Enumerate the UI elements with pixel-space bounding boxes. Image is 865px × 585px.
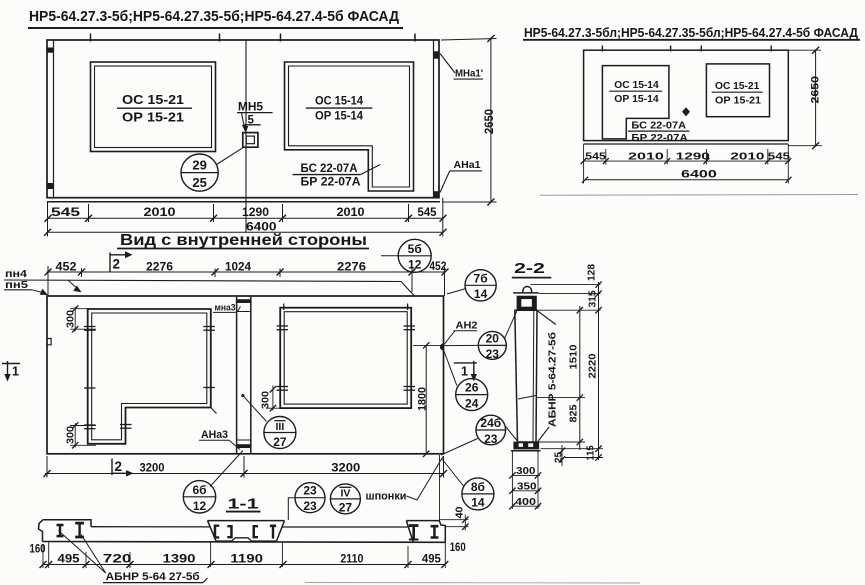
svg-text:26: 26	[465, 381, 479, 395]
svg-text:1: 1	[461, 365, 468, 379]
svg-text:300: 300	[65, 310, 77, 328]
svg-text:25: 25	[554, 452, 565, 463]
svg-text:12: 12	[408, 258, 422, 272]
svg-text:БР 22-07А: БР 22-07А	[631, 132, 688, 144]
svg-text:ОР 15-14: ОР 15-14	[315, 109, 363, 123]
svg-text:ОР 15-21: ОР 15-21	[715, 95, 761, 107]
svg-text:23: 23	[484, 432, 498, 446]
svg-text:пн5: пн5	[5, 279, 28, 291]
svg-text:ОС 15-21: ОС 15-21	[122, 93, 184, 107]
svg-text:2650: 2650	[810, 76, 822, 104]
svg-text:шпонки: шпонки	[366, 491, 407, 503]
svg-text:ОС 15-14: ОС 15-14	[315, 94, 363, 108]
svg-text:1: 1	[12, 365, 19, 379]
svg-text:495: 495	[58, 554, 81, 566]
svg-text:1290: 1290	[242, 207, 269, 219]
svg-text:1390: 1390	[163, 554, 196, 566]
svg-text:2010: 2010	[730, 151, 764, 163]
svg-text:6400: 6400	[681, 169, 717, 181]
svg-text:300: 300	[260, 391, 272, 409]
svg-text:АБНР 5-64 27-5б: АБНР 5-64 27-5б	[106, 571, 200, 583]
svg-text:545: 545	[418, 207, 438, 219]
svg-text:АНа1: АНа1	[454, 159, 481, 171]
svg-text:ОР 15-21: ОР 15-21	[122, 111, 184, 125]
svg-text:БР 22-07А: БР 22-07А	[301, 175, 361, 189]
svg-text:АБНР 5-64.27-5б: АБНР 5-64.27-5б	[547, 331, 559, 427]
svg-text:7б: 7б	[474, 271, 488, 285]
svg-text:1190: 1190	[230, 554, 263, 566]
svg-text:5б: 5б	[408, 242, 422, 256]
svg-text:545: 545	[51, 207, 81, 219]
svg-text:300: 300	[516, 465, 536, 477]
svg-text:315: 315	[588, 290, 599, 307]
svg-text:825: 825	[568, 404, 580, 422]
svg-text:452: 452	[56, 262, 77, 274]
svg-text:2: 2	[113, 257, 121, 272]
svg-text:2010: 2010	[144, 207, 176, 219]
svg-text:2276: 2276	[146, 262, 173, 274]
svg-text:МН5: МН5	[238, 102, 264, 114]
svg-text:545: 545	[585, 151, 606, 163]
svg-text:23: 23	[303, 499, 317, 513]
svg-text:14: 14	[471, 496, 485, 510]
svg-text:2110: 2110	[340, 554, 363, 566]
svg-text:300: 300	[65, 426, 77, 444]
svg-text:НР5-64.27.3-5б;НР5-64.27.35-5б: НР5-64.27.3-5б;НР5-64.27.35-5б;НР5-64.27…	[29, 8, 399, 25]
svg-text:ОР 15-14: ОР 15-14	[614, 93, 659, 105]
svg-text:ОС 15-21: ОС 15-21	[715, 80, 759, 92]
svg-text:6б: 6б	[192, 483, 206, 497]
svg-text:24: 24	[465, 397, 479, 411]
svg-text:АНа3: АНа3	[201, 429, 228, 441]
svg-text:23: 23	[303, 484, 317, 498]
svg-text:НР5-64.27.3-5бл;НР5-64.27.35-5: НР5-64.27.3-5бл;НР5-64.27.35-5бл;НР5-64.…	[524, 26, 858, 40]
svg-text:2-2: 2-2	[514, 261, 545, 277]
svg-text:29: 29	[192, 158, 206, 173]
svg-text:2010: 2010	[628, 151, 664, 163]
svg-text:12: 12	[193, 499, 207, 513]
svg-text:25: 25	[192, 175, 206, 190]
svg-text:1290: 1290	[676, 151, 710, 163]
svg-text:452: 452	[429, 261, 446, 273]
svg-text:3200: 3200	[331, 463, 360, 475]
svg-text:23: 23	[486, 347, 500, 361]
svg-text:20: 20	[486, 331, 500, 345]
svg-text:495: 495	[422, 554, 442, 566]
svg-text:160: 160	[450, 542, 466, 554]
svg-text:1024: 1024	[225, 262, 252, 274]
svg-text:128: 128	[587, 264, 598, 281]
svg-text:3200: 3200	[140, 463, 165, 475]
svg-text:27: 27	[273, 435, 287, 449]
svg-text:720: 720	[103, 554, 132, 566]
svg-text:ОС 15-14: ОС 15-14	[614, 79, 659, 91]
svg-text:350: 350	[517, 480, 537, 492]
svg-text:14: 14	[474, 287, 488, 301]
svg-text:24б: 24б	[480, 416, 501, 430]
svg-text:2650: 2650	[484, 109, 496, 134]
svg-text:1800: 1800	[417, 387, 429, 411]
svg-text:АН2: АН2	[456, 320, 478, 332]
svg-text:2220: 2220	[587, 353, 599, 378]
svg-text:545: 545	[768, 151, 790, 163]
svg-text:8б: 8б	[471, 480, 485, 494]
svg-text:1510: 1510	[568, 344, 580, 369]
svg-text:2010: 2010	[337, 207, 365, 219]
svg-text:Вид с внутренней стороны: Вид с внутренней стороны	[120, 232, 367, 249]
svg-text:2: 2	[115, 459, 123, 474]
svg-text:2276: 2276	[337, 262, 366, 274]
svg-text:IV: IV	[340, 487, 350, 499]
svg-text:27: 27	[339, 500, 353, 514]
svg-text:мна3: мна3	[215, 303, 236, 314]
svg-text:40: 40	[455, 506, 466, 518]
svg-text:1-1: 1-1	[228, 496, 259, 513]
svg-text:115: 115	[586, 445, 597, 460]
svg-text:МНа1': МНа1'	[455, 69, 483, 80]
svg-text:III: III	[276, 421, 285, 433]
svg-text:400: 400	[515, 496, 536, 508]
svg-text:БС 22-07А: БС 22-07А	[301, 161, 358, 175]
svg-text:БС 22-07А: БС 22-07А	[631, 120, 686, 132]
